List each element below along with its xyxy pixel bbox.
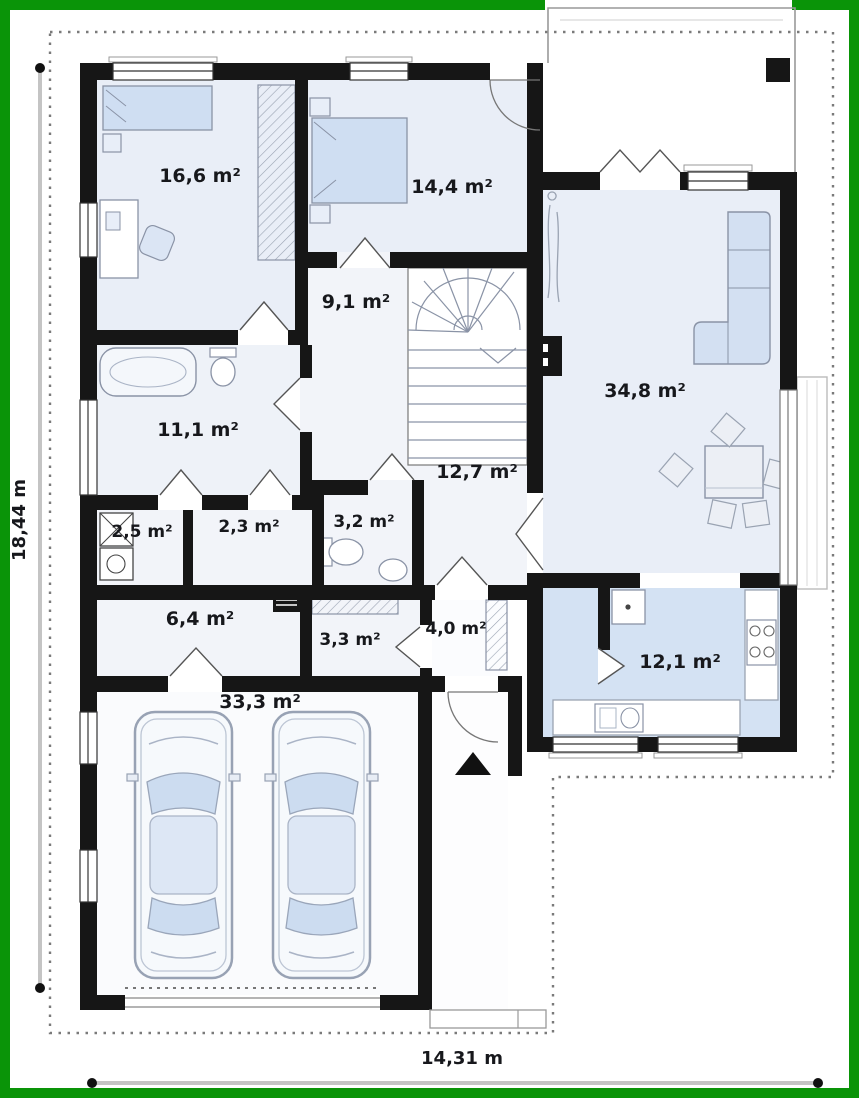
- chair: [708, 500, 736, 528]
- room-label-living-room: 34,8 m²: [604, 380, 686, 402]
- nightstand: [310, 98, 330, 116]
- floor-plan-drawing: 18,44 m 14,31 m: [0, 0, 859, 1098]
- dining-table: [705, 446, 763, 498]
- window: [549, 737, 642, 758]
- bed-single: [103, 86, 212, 130]
- room-label-laundry: 2,5 m²: [111, 522, 172, 542]
- room-label-corridor: 3,3 m²: [319, 630, 380, 650]
- nightstand: [310, 205, 330, 223]
- floor-plan-page: 18,44 m 14,31 m: [0, 0, 859, 1098]
- window: [80, 850, 97, 902]
- room-label-entry: 4,0 m²: [425, 619, 486, 639]
- toilet-tank: [210, 348, 236, 357]
- bathtub: [100, 348, 196, 396]
- window: [80, 400, 97, 495]
- sink-cabinet: [100, 548, 133, 580]
- terrace-cutout: [545, 0, 792, 30]
- room-label-upper-hall: 9,1 m²: [322, 291, 390, 313]
- room-label-utility: 6,4 m²: [166, 608, 234, 630]
- car: [127, 712, 240, 978]
- room-label-bedroom-top-middle: 14,4 m²: [411, 176, 493, 198]
- kitchen-counter: [553, 700, 740, 735]
- toilet: [329, 539, 363, 565]
- window: [109, 57, 217, 80]
- bed-double: [312, 118, 407, 203]
- side-terrace: [797, 377, 827, 589]
- room-label-kitchen: 12,1 m²: [639, 651, 721, 673]
- window: [346, 57, 412, 80]
- room-label-wc: 3,2 m²: [333, 512, 394, 532]
- room-label-garage: 33,3 m²: [219, 691, 301, 713]
- terrace-column: [766, 58, 790, 82]
- entry-steps: [430, 1010, 546, 1028]
- width-dimension-label: 14,31 m: [421, 1048, 503, 1069]
- window: [684, 165, 752, 190]
- nightstand: [103, 134, 121, 152]
- car: [265, 712, 378, 978]
- closet: [486, 600, 507, 670]
- room-label-bedroom-top-left: 16,6 m²: [159, 165, 241, 187]
- height-dimension-label: 18,44 m: [9, 479, 30, 561]
- window: [654, 737, 742, 758]
- window: [80, 203, 97, 257]
- window-large: [780, 390, 797, 585]
- room-label-bathroom: 11,1 m²: [157, 419, 239, 441]
- window: [80, 712, 97, 764]
- wardrobe: [258, 85, 295, 260]
- chair: [742, 500, 769, 527]
- washbasin: [379, 559, 407, 581]
- toilet: [211, 358, 235, 386]
- room-label-storage: 2,3 m²: [218, 517, 279, 537]
- room-label-main-hall: 12,7 m²: [436, 461, 518, 483]
